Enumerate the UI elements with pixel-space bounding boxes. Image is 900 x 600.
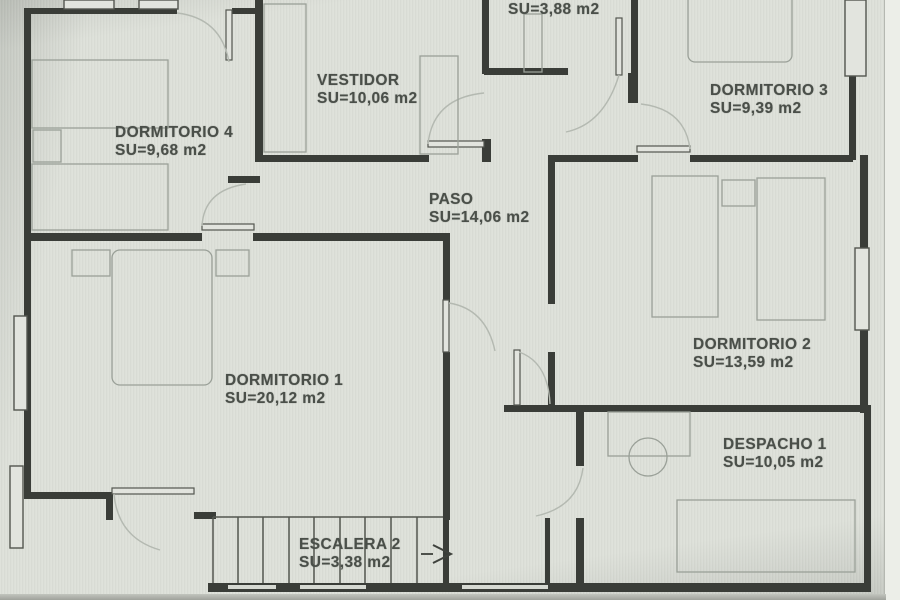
room-area: SU=13,59 m2 <box>693 354 811 372</box>
room-label-vestidor: VESTIDOR SU=10,06 m2 <box>317 72 417 108</box>
nightstand <box>722 180 755 206</box>
window <box>10 466 23 548</box>
door-leaf <box>202 224 254 230</box>
wardrobe <box>264 4 306 152</box>
room-area: SU=3,88 m2 <box>508 1 599 19</box>
door-leaf <box>616 18 622 75</box>
floor-plan-photo: BAÑO 2 SU=3,88 m2 VESTIDOR SU=10,06 m2 D… <box>0 0 900 600</box>
bed <box>32 164 168 230</box>
room-name: DORMITORIO 1 <box>225 372 343 390</box>
room-name: PASO <box>429 191 529 209</box>
door-leaf <box>637 146 690 152</box>
door-leaf <box>443 300 449 352</box>
bed <box>757 178 825 320</box>
room-name: VESTIDOR <box>317 72 417 90</box>
photo-edge-strip <box>884 0 900 600</box>
chair <box>629 438 667 476</box>
room-area: SU=14,06 m2 <box>429 209 529 227</box>
room-label-despacho1: DESPACHO 1 SU=10,05 m2 <box>723 436 827 472</box>
bed <box>688 0 792 62</box>
room-label-dormitorio4: DORMITORIO 4 SU=9,68 m2 <box>115 124 233 160</box>
nightstand <box>216 250 249 276</box>
room-label-escalera2: ESCALERA 2 SU=3,38 m2 <box>299 536 401 572</box>
door-leaf <box>428 141 484 147</box>
room-name: DORMITORIO 4 <box>115 124 233 142</box>
room-label-dormitorio2: DORMITORIO 2 SU=13,59 m2 <box>693 336 811 372</box>
desk <box>608 412 690 456</box>
photo-bottom-shadow <box>0 594 886 600</box>
room-name: DORMITORIO 3 <box>710 82 828 100</box>
room-label-dormitorio1: DORMITORIO 1 SU=20,12 m2 <box>225 372 343 408</box>
room-area: SU=10,05 m2 <box>723 454 827 472</box>
room-area: SU=9,68 m2 <box>115 142 233 160</box>
door-leaf <box>514 350 520 405</box>
sofa <box>677 500 855 572</box>
room-label-dormitorio3: DORMITORIO 3 SU=9,39 m2 <box>710 82 828 118</box>
nightstand <box>33 130 61 162</box>
bed <box>112 250 212 385</box>
room-area: SU=10,06 m2 <box>317 90 417 108</box>
window <box>14 316 27 410</box>
bed <box>652 176 718 317</box>
room-name: DESPACHO 1 <box>723 436 827 454</box>
room-area: SU=20,12 m2 <box>225 390 343 408</box>
room-name: DORMITORIO 2 <box>693 336 811 354</box>
room-area: SU=3,38 m2 <box>299 554 401 572</box>
window <box>845 0 866 76</box>
room-area: SU=9,39 m2 <box>710 100 828 118</box>
room-label-paso: PASO SU=14,06 m2 <box>429 191 529 227</box>
bed <box>32 60 168 128</box>
room-label-bano2: BAÑO 2 SU=3,88 m2 <box>508 0 599 19</box>
door-leaf <box>112 488 194 494</box>
wardrobe <box>420 56 458 154</box>
nightstand <box>72 250 110 276</box>
shower-screen <box>524 14 542 72</box>
window <box>139 0 178 9</box>
window <box>64 0 114 9</box>
window <box>855 248 869 330</box>
room-name: ESCALERA 2 <box>299 536 401 554</box>
